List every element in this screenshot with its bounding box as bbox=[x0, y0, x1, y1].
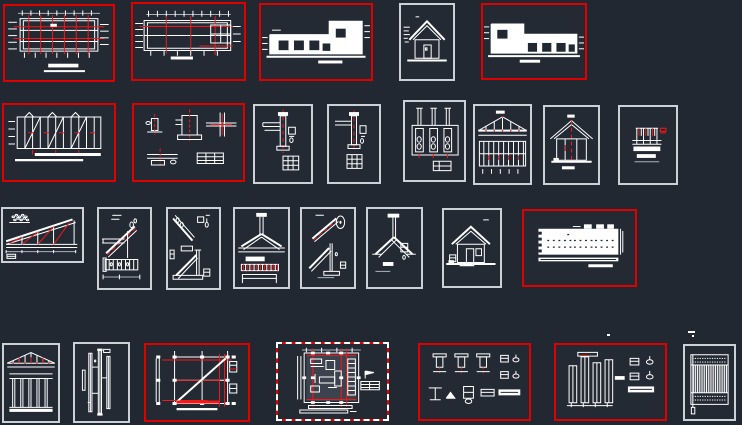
frame-truss-heel-detail-sketch bbox=[99, 209, 150, 288]
frame-section-detail[interactable] bbox=[618, 105, 678, 185]
frame-floor-plan-1[interactable] bbox=[3, 4, 115, 82]
stray-mark-1 bbox=[607, 334, 610, 336]
frame-brace-detail-1-sketch bbox=[168, 209, 219, 288]
frame-apex-joint-detail-sketch bbox=[235, 209, 288, 287]
frame-stud-details-sketch bbox=[75, 344, 128, 421]
frame-wall-section-details[interactable] bbox=[554, 343, 667, 421]
frame-section-detail-sketch bbox=[620, 107, 676, 183]
frame-connection-details-sketch bbox=[134, 105, 243, 180]
frame-panel-plan-sketch bbox=[524, 211, 635, 285]
frame-brace-detail-2-sketch bbox=[302, 209, 354, 287]
frame-roof-framing-plan-sketch bbox=[4, 105, 114, 180]
frame-truss-and-bracing[interactable] bbox=[473, 104, 532, 185]
frame-selected-plan[interactable] bbox=[276, 342, 389, 421]
frame-column-reinforcement-sketch bbox=[405, 102, 464, 180]
frame-wall-section-details-sketch bbox=[556, 345, 665, 419]
frame-building-cross-section[interactable] bbox=[543, 105, 600, 185]
stray-mark-2 bbox=[688, 331, 695, 333]
frame-apex-joint-detail[interactable] bbox=[233, 207, 290, 289]
frame-floor-plan-2-sketch bbox=[133, 4, 244, 79]
cad-canvas bbox=[0, 0, 742, 425]
frame-house-elevation-small[interactable] bbox=[399, 3, 455, 81]
frame-stud-details[interactable] bbox=[73, 342, 130, 423]
frame-house-elevation-small-sketch bbox=[401, 5, 453, 79]
frame-foundation-plan[interactable] bbox=[144, 343, 250, 422]
frame-truss-and-bracing-sketch bbox=[475, 106, 530, 183]
frame-half-truss-detail[interactable] bbox=[1, 207, 84, 263]
frame-truss-frame-elevation[interactable] bbox=[2, 343, 60, 423]
frame-base-details-grid[interactable] bbox=[418, 343, 531, 421]
frame-elevation-front[interactable] bbox=[259, 3, 373, 81]
frame-truss-heel-detail[interactable] bbox=[97, 207, 152, 290]
frame-floor-plan-1-sketch bbox=[5, 6, 113, 80]
frame-hatched-grid-panel[interactable] bbox=[683, 344, 736, 421]
frame-elevation-front-sketch bbox=[261, 5, 371, 79]
frame-column-detail-2-sketch bbox=[329, 106, 379, 182]
frame-house-section-small[interactable] bbox=[442, 208, 502, 288]
frame-strut-joint-detail-sketch bbox=[368, 209, 421, 287]
frame-roof-framing-plan[interactable] bbox=[2, 103, 116, 182]
frame-foundation-plan-sketch bbox=[146, 345, 248, 420]
frame-elevation-rear-sketch bbox=[483, 5, 585, 78]
frame-hatched-grid-panel-sketch bbox=[685, 346, 734, 419]
frame-column-detail-1[interactable] bbox=[253, 104, 313, 184]
frame-panel-plan[interactable] bbox=[522, 209, 637, 287]
frame-strut-joint-detail[interactable] bbox=[366, 207, 423, 289]
frame-column-detail-1-sketch bbox=[255, 106, 311, 182]
frame-column-reinforcement[interactable] bbox=[403, 100, 466, 182]
frame-selected-plan-sketch bbox=[278, 344, 387, 419]
frame-connection-details[interactable] bbox=[132, 103, 245, 182]
frame-building-cross-section-sketch bbox=[545, 107, 598, 183]
stray-mark-3 bbox=[692, 335, 694, 337]
frame-half-truss-detail-sketch bbox=[3, 209, 82, 261]
frame-base-details-grid-sketch bbox=[420, 345, 529, 419]
frame-house-section-small-sketch bbox=[444, 210, 500, 286]
frame-brace-detail-2[interactable] bbox=[300, 207, 356, 289]
frame-brace-detail-1[interactable] bbox=[166, 207, 221, 290]
frame-column-detail-2[interactable] bbox=[327, 104, 381, 184]
frame-truss-frame-elevation-sketch bbox=[4, 345, 58, 421]
frame-floor-plan-2[interactable] bbox=[131, 2, 246, 81]
frame-elevation-rear[interactable] bbox=[481, 3, 587, 80]
